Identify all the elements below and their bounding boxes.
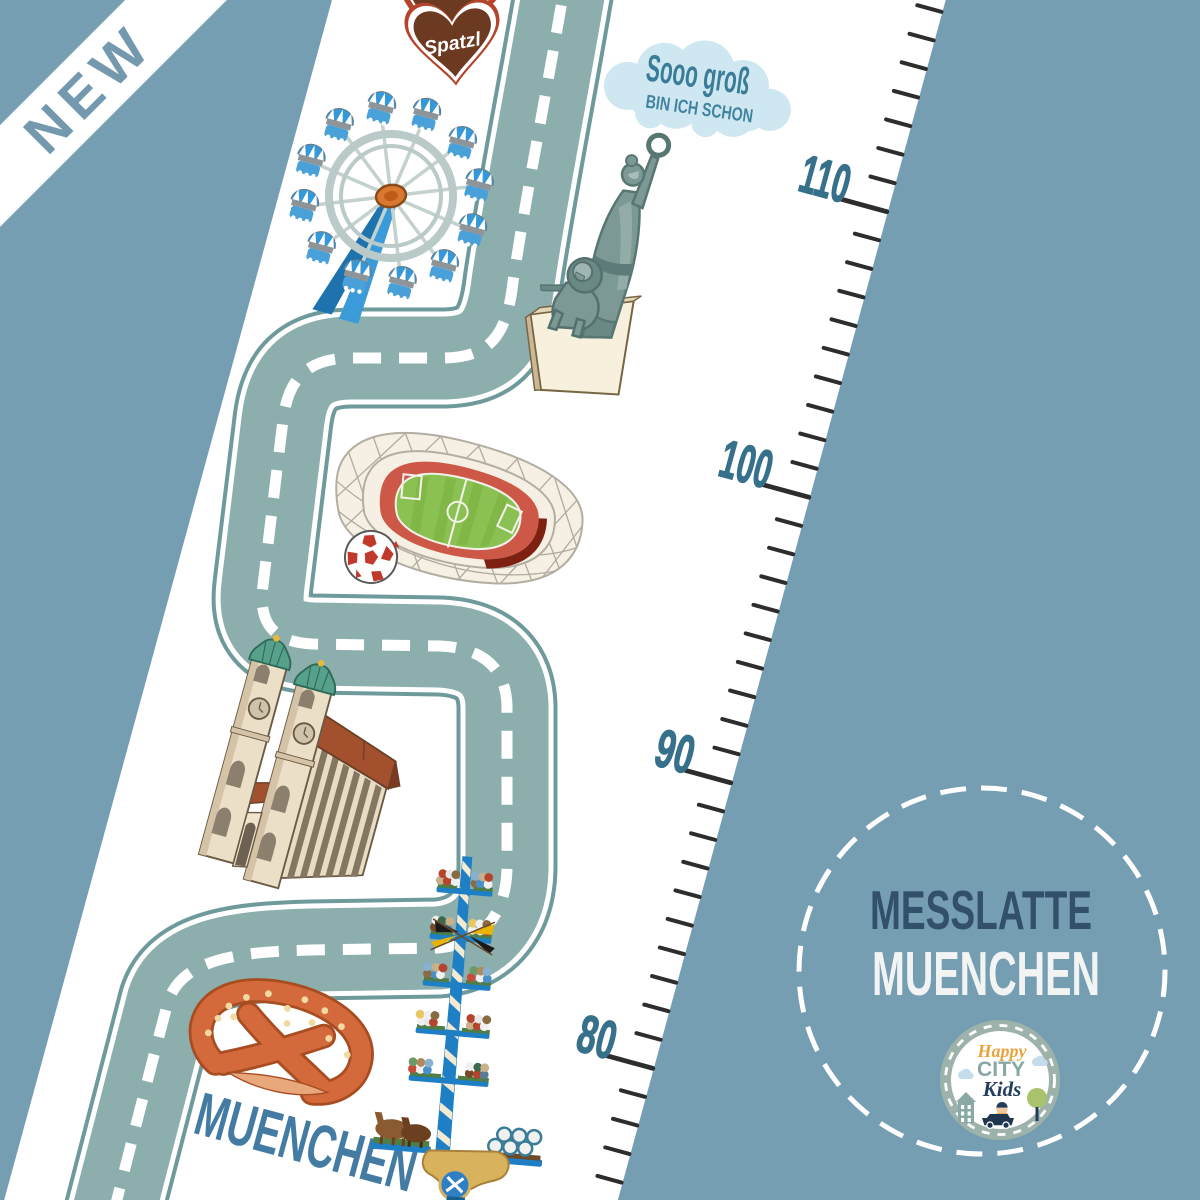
svg-text:MUENCHEN: MUENCHEN xyxy=(872,940,1100,1009)
svg-text:Kids: Kids xyxy=(982,1077,1022,1101)
svg-text:MESSLATTE: MESSLATTE xyxy=(870,879,1092,941)
